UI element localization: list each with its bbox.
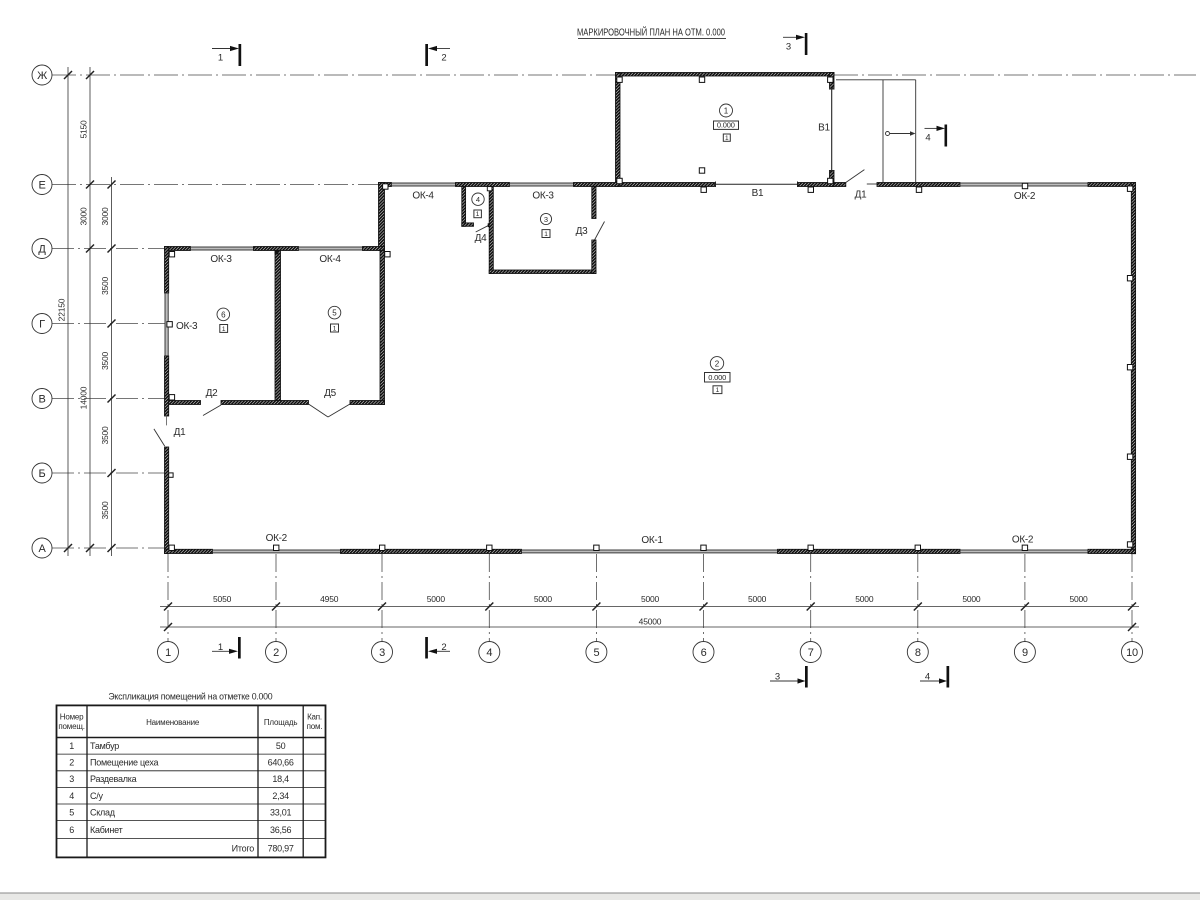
svg-text:3000: 3000 xyxy=(100,207,110,226)
svg-text:6: 6 xyxy=(69,825,74,835)
svg-text:ОК-2: ОК-2 xyxy=(266,533,288,544)
svg-text:5: 5 xyxy=(593,647,599,659)
svg-text:4950: 4950 xyxy=(320,594,339,604)
svg-text:Склад: Склад xyxy=(90,807,116,817)
svg-text:А: А xyxy=(38,543,46,555)
svg-text:22150: 22150 xyxy=(57,298,67,321)
svg-text:Помещение цеха: Помещение цеха xyxy=(90,758,158,768)
svg-text:Д5: Д5 xyxy=(324,388,336,399)
svg-text:ОК-4: ОК-4 xyxy=(319,254,341,265)
svg-text:0.000: 0.000 xyxy=(708,373,726,382)
svg-text:4: 4 xyxy=(925,672,930,683)
svg-text:4: 4 xyxy=(925,133,930,144)
svg-text:33,01: 33,01 xyxy=(270,807,292,817)
svg-text:9: 9 xyxy=(1022,647,1028,659)
svg-text:В: В xyxy=(38,393,45,405)
svg-text:Д3: Д3 xyxy=(576,226,588,237)
svg-text:ОК-3: ОК-3 xyxy=(532,190,554,201)
svg-text:0.000: 0.000 xyxy=(717,121,735,130)
svg-text:3500: 3500 xyxy=(100,351,110,370)
svg-text:5000: 5000 xyxy=(427,594,446,604)
svg-text:ОК-3: ОК-3 xyxy=(176,321,198,332)
svg-text:5150: 5150 xyxy=(79,120,89,139)
svg-text:5000: 5000 xyxy=(962,594,981,604)
svg-text:3000: 3000 xyxy=(79,207,89,226)
svg-text:ОК-3: ОК-3 xyxy=(210,254,232,265)
svg-text:3500: 3500 xyxy=(100,276,110,295)
svg-text:Е: Е xyxy=(38,179,45,191)
svg-text:Д1: Д1 xyxy=(174,427,186,438)
svg-text:4: 4 xyxy=(69,791,74,801)
svg-text:50: 50 xyxy=(276,741,286,751)
svg-text:Раздевалка: Раздевалка xyxy=(90,774,137,784)
svg-text:1: 1 xyxy=(544,231,548,238)
svg-text:ОК-2: ОК-2 xyxy=(1012,535,1034,546)
svg-text:8: 8 xyxy=(915,647,921,659)
svg-text:Б: Б xyxy=(39,468,46,480)
svg-text:В1: В1 xyxy=(818,123,830,134)
svg-text:7: 7 xyxy=(808,647,814,659)
svg-text:4: 4 xyxy=(476,195,480,204)
svg-text:Тамбур: Тамбур xyxy=(90,741,119,751)
svg-text:Кабинет: Кабинет xyxy=(90,825,123,835)
svg-text:10: 10 xyxy=(1126,647,1138,659)
svg-text:3500: 3500 xyxy=(100,501,110,520)
svg-text:2: 2 xyxy=(69,758,74,768)
svg-text:1: 1 xyxy=(218,53,223,64)
svg-text:Г: Г xyxy=(39,318,45,330)
svg-text:5000: 5000 xyxy=(641,594,660,604)
svg-text:С/у: С/у xyxy=(90,791,104,801)
svg-text:36,56: 36,56 xyxy=(270,825,292,835)
svg-text:5050: 5050 xyxy=(213,594,232,604)
svg-text:1: 1 xyxy=(222,326,226,333)
svg-text:3: 3 xyxy=(786,41,791,52)
svg-text:45000: 45000 xyxy=(639,617,662,627)
svg-text:Кап.: Кап. xyxy=(307,713,322,722)
svg-text:МАРКИРОВОЧНЫЙ ПЛАН НА ОТМ. 0.0: МАРКИРОВОЧНЫЙ ПЛАН НА ОТМ. 0.000 xyxy=(577,26,725,39)
svg-text:6: 6 xyxy=(221,311,226,320)
svg-text:Д2: Д2 xyxy=(206,388,218,399)
svg-text:Д4: Д4 xyxy=(475,233,487,244)
svg-text:Д: Д xyxy=(38,243,46,255)
svg-text:ОК-1: ОК-1 xyxy=(641,535,663,546)
svg-text:Ж: Ж xyxy=(37,70,47,82)
svg-text:5: 5 xyxy=(69,807,74,817)
svg-text:2: 2 xyxy=(715,360,720,369)
svg-text:5000: 5000 xyxy=(1069,594,1088,604)
svg-text:2: 2 xyxy=(441,53,446,64)
svg-text:3: 3 xyxy=(544,215,548,224)
svg-text:1: 1 xyxy=(69,741,74,751)
svg-text:5000: 5000 xyxy=(748,594,767,604)
svg-text:2: 2 xyxy=(273,647,279,659)
svg-text:780,97: 780,97 xyxy=(268,844,294,854)
svg-text:1: 1 xyxy=(333,325,337,332)
svg-text:1: 1 xyxy=(476,211,480,218)
svg-text:3: 3 xyxy=(69,774,74,784)
svg-text:Экспликация помещений на отмет: Экспликация помещений на отметке 0.000 xyxy=(108,692,272,702)
svg-text:Площадь: Площадь xyxy=(264,718,297,727)
svg-text:2: 2 xyxy=(441,642,446,653)
svg-text:ОК-2: ОК-2 xyxy=(1014,191,1036,202)
svg-text:3: 3 xyxy=(775,672,780,683)
svg-text:В1: В1 xyxy=(752,188,764,199)
svg-text:1: 1 xyxy=(218,642,223,653)
svg-text:1: 1 xyxy=(724,107,729,116)
svg-text:Номер: Номер xyxy=(60,713,84,722)
svg-text:1: 1 xyxy=(165,647,171,659)
svg-text:Итого: Итого xyxy=(232,844,255,854)
svg-text:18,4: 18,4 xyxy=(272,774,289,784)
svg-text:5000: 5000 xyxy=(855,594,874,604)
svg-text:помещ.: помещ. xyxy=(58,722,84,731)
svg-text:3500: 3500 xyxy=(100,426,110,445)
svg-text:5: 5 xyxy=(332,309,337,318)
svg-text:4: 4 xyxy=(486,647,492,659)
svg-text:Наименование: Наименование xyxy=(146,718,200,727)
svg-text:1: 1 xyxy=(716,387,720,394)
svg-text:2,34: 2,34 xyxy=(272,791,289,801)
svg-text:1: 1 xyxy=(725,135,729,142)
svg-text:Д1: Д1 xyxy=(855,190,867,201)
svg-text:ОК-4: ОК-4 xyxy=(412,190,434,201)
svg-text:6: 6 xyxy=(701,647,707,659)
svg-text:5000: 5000 xyxy=(534,594,553,604)
svg-text:3: 3 xyxy=(379,647,385,659)
svg-text:пом.: пом. xyxy=(307,722,323,731)
svg-text:640,66: 640,66 xyxy=(268,758,294,768)
svg-text:14000: 14000 xyxy=(79,386,89,409)
